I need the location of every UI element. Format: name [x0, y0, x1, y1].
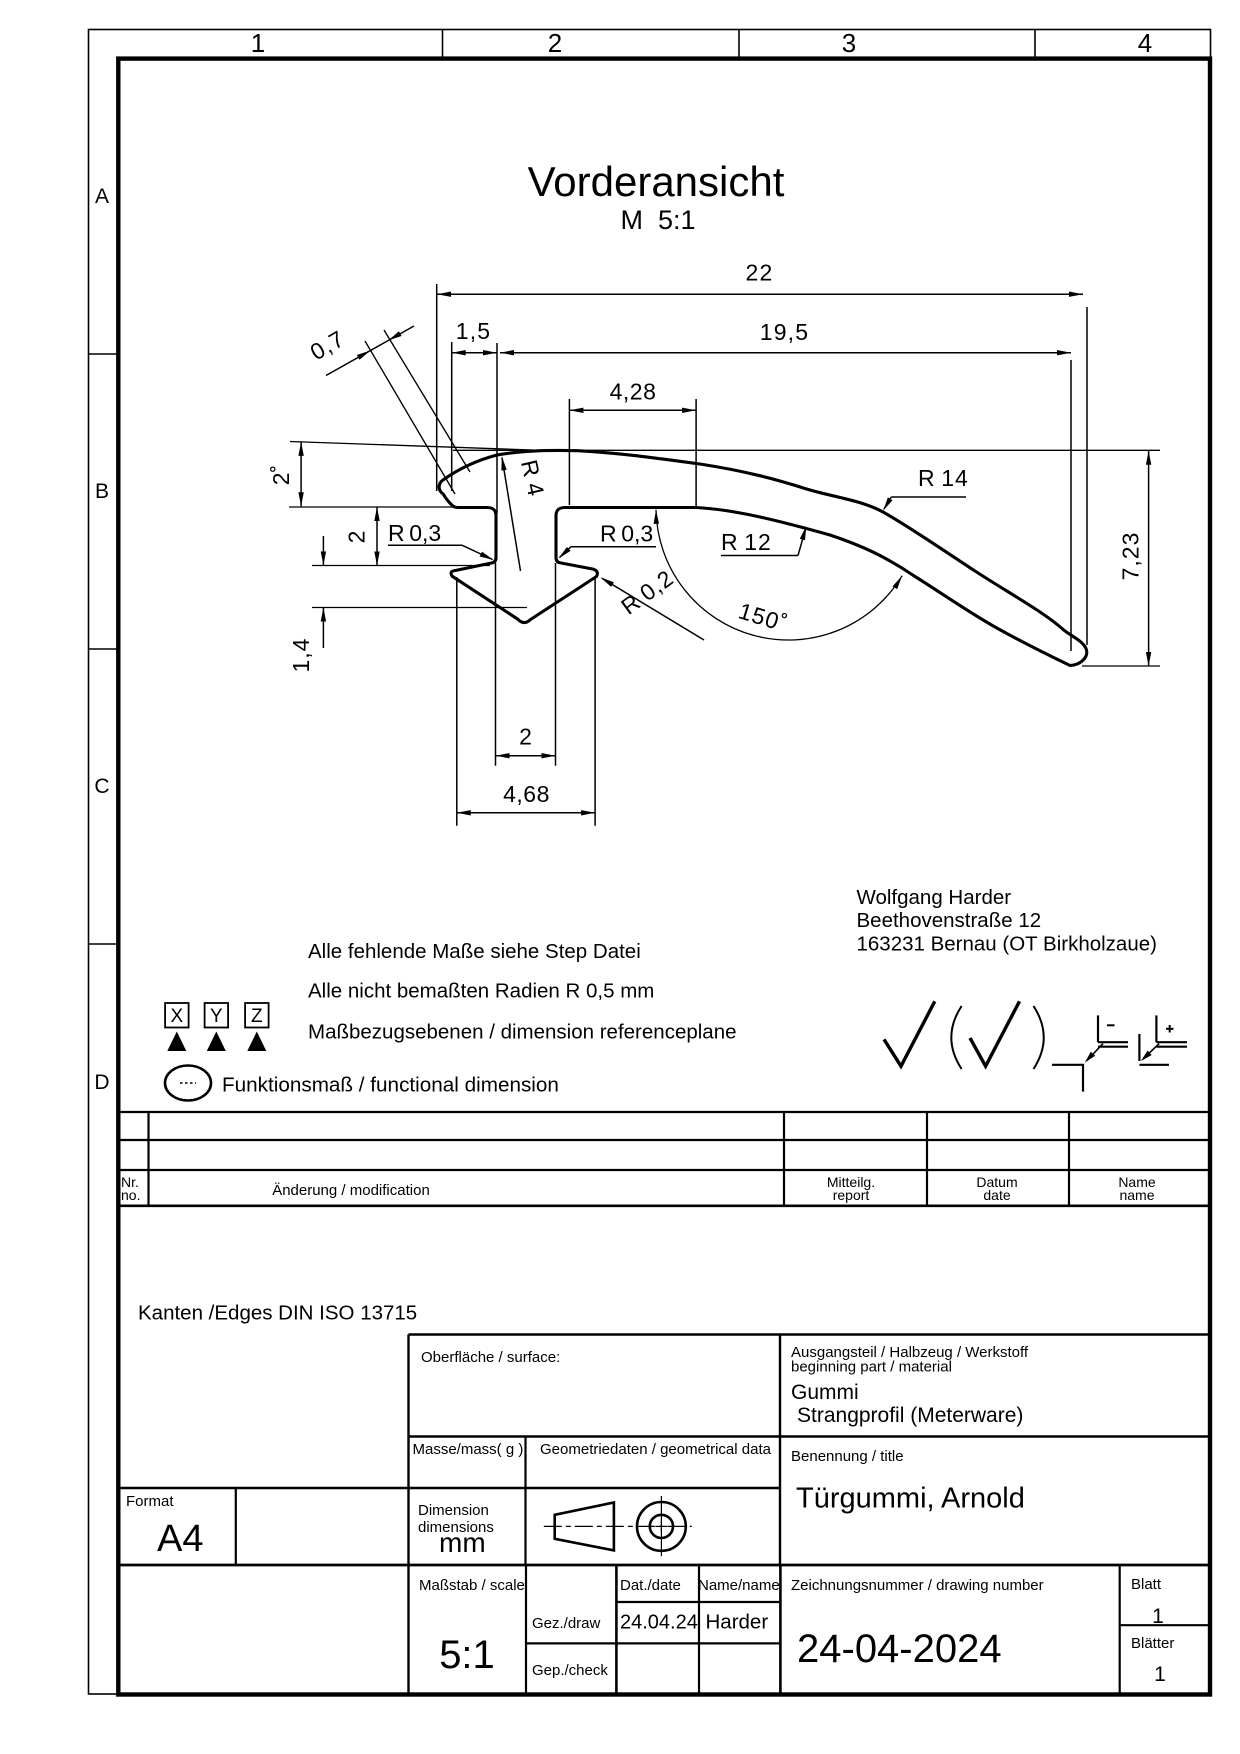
svg-text:Format: Format: [126, 1493, 174, 1510]
svg-text:Gep./check: Gep./check: [532, 1662, 608, 1679]
svg-text:4,68: 4,68: [503, 781, 550, 807]
svg-text:Dat./date: Dat./date: [620, 1577, 681, 1594]
svg-text:name: name: [1119, 1187, 1154, 1203]
svg-text:5:1: 5:1: [439, 1633, 495, 1677]
svg-text:Z: Z: [251, 1006, 263, 1027]
svg-text:R 0,3: R 0,3: [388, 520, 441, 546]
svg-text:7,23: 7,23: [1118, 532, 1144, 581]
svg-text:Funktionsmaß / functional dime: Funktionsmaß / functional dimension: [222, 1074, 559, 1097]
svg-text:mm: mm: [439, 1527, 486, 1558]
svg-text:4: 4: [1138, 28, 1152, 58]
svg-text:Strangprofil (Meterware): Strangprofil (Meterware): [797, 1404, 1023, 1427]
svg-text:D: D: [94, 1071, 109, 1094]
svg-text:Dimension: Dimension: [418, 1502, 489, 1519]
svg-text:Maßbezugsebenen / dimension re: Maßbezugsebenen / dimension referencepla…: [308, 1021, 737, 1044]
svg-text:C: C: [94, 775, 109, 798]
svg-text:Blatt: Blatt: [1131, 1576, 1162, 1593]
svg-text:Gez./draw: Gez./draw: [532, 1615, 601, 1632]
svg-text:Alle fehlende Maße siehe Step: Alle fehlende Maße siehe Step Datei: [308, 940, 641, 963]
svg-text:0,7: 0,7: [306, 325, 350, 365]
svg-text:Oberfläche / surface:: Oberfläche / surface:: [421, 1349, 560, 1366]
svg-text:Y: Y: [210, 1006, 223, 1027]
svg-text:24-04-2024: 24-04-2024: [797, 1627, 1002, 1671]
svg-text:1: 1: [251, 28, 265, 58]
svg-text:Türgummi, Arnold: Türgummi, Arnold: [796, 1483, 1025, 1515]
svg-text:Masse/mass( g ): Masse/mass( g ): [413, 1441, 524, 1458]
svg-text:Blätter: Blätter: [1131, 1635, 1174, 1652]
svg-text:2: 2: [344, 531, 370, 544]
svg-text:19,5: 19,5: [760, 319, 810, 345]
svg-text:Zeichnungsnummer / drawing num: Zeichnungsnummer / drawing number: [791, 1577, 1044, 1594]
svg-text:Änderung / modification: Änderung / modification: [272, 1182, 430, 1199]
svg-text:R 12: R 12: [721, 529, 772, 555]
svg-text:2: 2: [519, 724, 532, 750]
svg-text:Gummi: Gummi: [791, 1381, 859, 1404]
svg-text:report: report: [833, 1187, 870, 1203]
svg-text:3: 3: [842, 28, 856, 58]
svg-text:Benennung / title: Benennung / title: [791, 1448, 904, 1465]
svg-text:B: B: [95, 480, 109, 503]
svg-text:Maßstab / scale: Maßstab / scale: [419, 1577, 525, 1594]
svg-text:Harder: Harder: [706, 1611, 769, 1634]
svg-text:22: 22: [746, 260, 774, 286]
svg-text:4,28: 4,28: [610, 379, 657, 405]
svg-text:no.: no.: [121, 1187, 140, 1203]
svg-text:2: 2: [548, 28, 562, 58]
svg-text:1: 1: [1152, 1605, 1164, 1628]
svg-text:2˚: 2˚: [268, 465, 294, 485]
svg-text:Alle nicht bemaßten Radien R 0: Alle nicht bemaßten Radien R 0,5 mm: [308, 980, 654, 1003]
svg-text:1: 1: [1154, 1663, 1166, 1686]
svg-text:date: date: [983, 1187, 1010, 1203]
svg-text:R 14: R 14: [918, 465, 969, 491]
svg-text:Vorderansicht: Vorderansicht: [528, 158, 785, 205]
svg-text:Wolfgang Harder: Wolfgang Harder: [857, 886, 1012, 909]
svg-text:Name/name: Name/name: [698, 1577, 780, 1594]
svg-text:24.04.24: 24.04.24: [620, 1612, 698, 1634]
svg-text:X: X: [170, 1006, 183, 1027]
svg-text:R 4: R 4: [516, 457, 550, 499]
svg-text:Geometriedaten / geometrical d: Geometriedaten / geometrical data: [540, 1441, 772, 1458]
svg-text:1,4: 1,4: [288, 638, 314, 673]
svg-text:R 0,3: R 0,3: [600, 521, 653, 547]
svg-text:beginning part / material: beginning part / material: [791, 1359, 952, 1376]
svg-text:Kanten /Edges DIN ISO 13715: Kanten /Edges DIN ISO 13715: [138, 1302, 417, 1325]
svg-text:A4: A4: [157, 1518, 203, 1560]
svg-text:1,5: 1,5: [456, 318, 492, 344]
svg-text:M 5:1: M 5:1: [620, 205, 695, 235]
svg-text:Beethovenstraße 12: Beethovenstraße 12: [857, 909, 1042, 932]
svg-text:163231 Bernau (OT Birkholzaue): 163231 Bernau (OT Birkholzaue): [857, 933, 1157, 956]
svg-text:A: A: [95, 185, 109, 208]
svg-text:150˚: 150˚: [736, 598, 791, 637]
